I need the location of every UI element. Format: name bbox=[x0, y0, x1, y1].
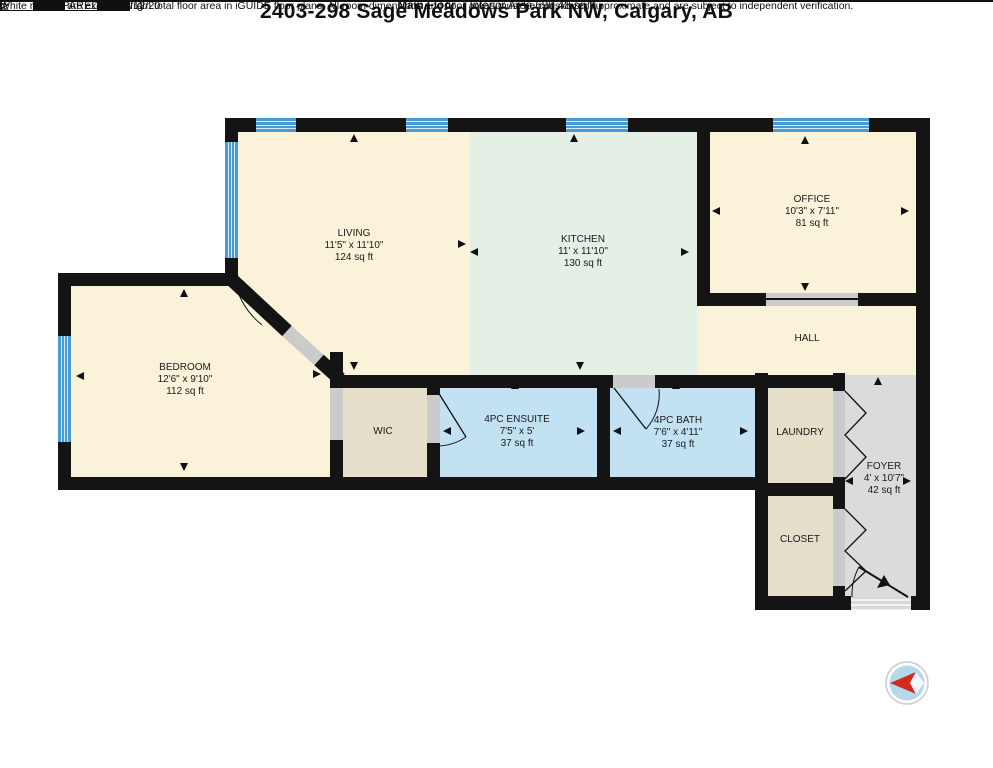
dimension-arrow-icon bbox=[570, 134, 578, 142]
window-icon bbox=[225, 142, 238, 258]
label-office: OFFICE10'3" x 7'11"81 sq ft bbox=[742, 194, 882, 230]
entry-door-threshold bbox=[851, 596, 911, 610]
wall bbox=[755, 483, 845, 496]
dimension-arrow-icon bbox=[180, 289, 188, 297]
dimension-arrow-icon bbox=[740, 427, 748, 435]
dimension-arrow-icon bbox=[313, 370, 321, 378]
dimension-arrow-icon bbox=[801, 283, 809, 291]
label-closet: CLOSET bbox=[760, 534, 840, 546]
window-icon bbox=[58, 336, 71, 442]
dimension-arrow-icon bbox=[845, 477, 853, 485]
label-bath: 4PC BATH7'6" x 4'11"37 sq ft bbox=[608, 415, 748, 451]
dimension-arrow-icon bbox=[681, 248, 689, 256]
dimension-arrow-icon bbox=[443, 427, 451, 435]
dimension-arrow-icon bbox=[613, 427, 621, 435]
disclaimer-text: White regions are excluded from total fl… bbox=[0, 0, 940, 12]
door-opening bbox=[330, 388, 343, 440]
dimension-arrow-icon bbox=[801, 136, 809, 144]
window-icon bbox=[773, 118, 869, 132]
wall bbox=[58, 273, 238, 286]
dimension-arrow-icon bbox=[903, 477, 911, 485]
bifold-opening bbox=[833, 509, 845, 586]
room-closet bbox=[768, 496, 833, 596]
label-living: LIVING11'5" x 11'10"124 sq ft bbox=[284, 228, 424, 264]
wall bbox=[697, 118, 710, 306]
dimension-arrow-icon bbox=[672, 381, 680, 389]
wall bbox=[916, 118, 930, 610]
label-kitchen: KITCHEN11' x 11'10"130 sq ft bbox=[513, 234, 653, 270]
wall bbox=[58, 477, 768, 490]
window-icon bbox=[406, 118, 448, 132]
dimension-arrow-icon bbox=[577, 427, 585, 435]
dimension-arrow-icon bbox=[76, 372, 84, 380]
label-laundry: LAUNDRY bbox=[755, 427, 845, 439]
window-icon bbox=[256, 118, 296, 132]
dimension-arrow-icon bbox=[901, 207, 909, 215]
dimension-arrow-icon bbox=[576, 362, 584, 370]
dimension-arrow-icon bbox=[712, 207, 720, 215]
dimension-arrow-icon bbox=[458, 240, 466, 248]
label-wic: WIC bbox=[343, 426, 423, 438]
dimension-arrow-icon bbox=[874, 377, 882, 385]
window-icon bbox=[566, 118, 628, 132]
label-ensuite: 4PC ENSUITE7'5" x 5'37 sq ft bbox=[447, 414, 587, 450]
label-hall: HALL bbox=[747, 333, 867, 345]
door-opening bbox=[613, 375, 655, 388]
sliding-door-track bbox=[766, 298, 858, 300]
dimension-arrow-icon bbox=[180, 463, 188, 471]
dimension-arrow-icon bbox=[511, 381, 519, 389]
dimension-arrow-icon bbox=[350, 134, 358, 142]
wall bbox=[330, 440, 343, 480]
dimension-arrow-icon bbox=[350, 362, 358, 370]
door-opening bbox=[427, 395, 440, 443]
compass-icon bbox=[884, 660, 930, 706]
dimension-arrow-icon bbox=[470, 248, 478, 256]
label-bedroom: BEDROOM12'6" x 9'10"112 sq ft bbox=[115, 362, 255, 398]
floor-plan: LIVING11'5" x 11'10"124 sq ft KITCHEN11'… bbox=[0, 0, 993, 768]
wall bbox=[833, 373, 845, 391]
wall bbox=[427, 443, 440, 477]
